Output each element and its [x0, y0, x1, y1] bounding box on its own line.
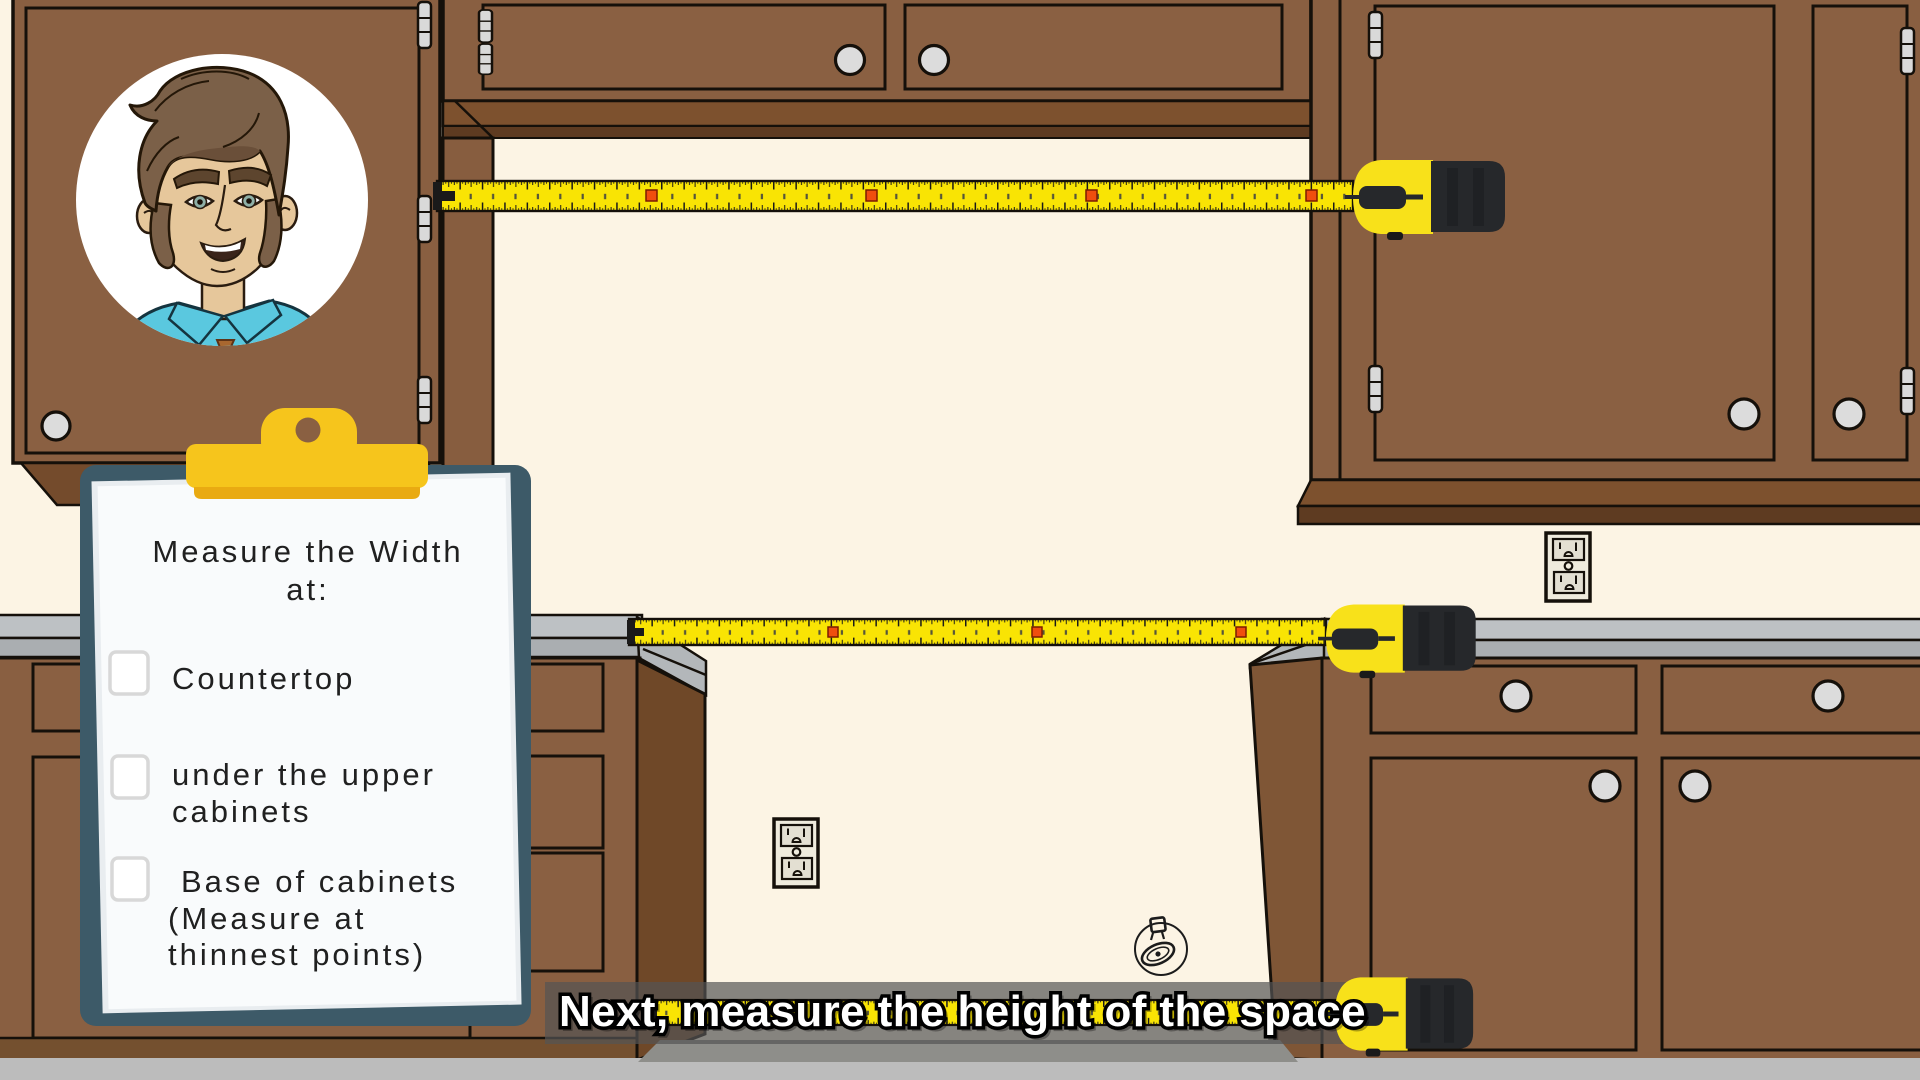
svg-text:Countertop: Countertop	[172, 661, 355, 696]
svg-text:at:: at:	[286, 572, 329, 607]
svg-text:thinnest points): thinnest points)	[168, 937, 426, 972]
svg-text:cabinets: cabinets	[172, 794, 311, 829]
svg-text:under the upper: under the upper	[172, 757, 436, 792]
svg-text:Next, measure the height of th: Next, measure the height of the space	[559, 987, 1366, 1036]
svg-text:Base of cabinets: Base of cabinets	[181, 864, 458, 899]
svg-text:Measure the Width: Measure the Width	[152, 534, 463, 569]
svg-text:(Measure at: (Measure at	[168, 901, 366, 936]
